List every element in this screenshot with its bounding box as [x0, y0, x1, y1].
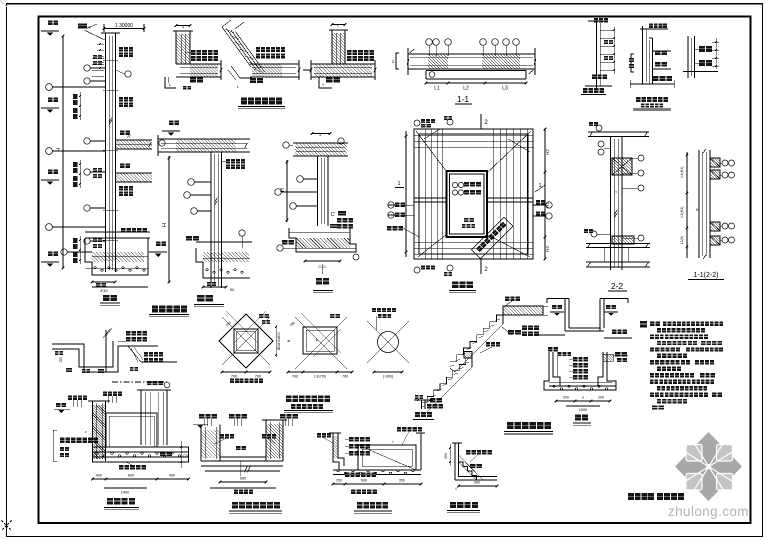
svg-text:700: 700 [342, 375, 348, 379]
svg-text:350: 350 [399, 479, 405, 483]
svg-text:400: 400 [169, 474, 175, 478]
svg-text:300: 300 [474, 481, 480, 485]
svg-text:o: o [582, 396, 584, 400]
svg-text:A': A' [127, 134, 131, 139]
svg-text:250: 250 [336, 479, 342, 483]
svg-text:400: 400 [96, 474, 102, 478]
svg-text:700: 700 [231, 375, 237, 379]
svg-text:C': C' [331, 212, 336, 218]
svg-text:L3: L3 [502, 86, 508, 92]
svg-text:600: 600 [361, 479, 367, 483]
svg-text:700: 700 [292, 375, 298, 379]
svg-text:H2: H2 [545, 149, 550, 155]
svg-text:2-2: 2-2 [611, 281, 624, 291]
svg-text:[-300]: [-300] [383, 375, 393, 379]
svg-text:H3: H3 [545, 246, 550, 252]
svg-text:200: 200 [598, 396, 604, 400]
svg-text:600: 600 [128, 474, 134, 478]
svg-text:150: 150 [59, 357, 63, 363]
svg-text:1-1(2-2): 1-1(2-2) [694, 272, 719, 279]
svg-text:H1: H1 [545, 202, 550, 208]
svg-text:H: H [280, 188, 286, 192]
svg-text:E10: E10 [100, 288, 108, 293]
svg-text:200: 200 [563, 396, 569, 400]
svg-text:H: H [56, 148, 62, 152]
svg-text:1: 1 [397, 181, 400, 187]
svg-text:200: 200 [444, 453, 448, 459]
svg-text:1400: 1400 [121, 491, 129, 495]
svg-text:H: H [696, 208, 699, 212]
svg-text:L3x700: L3x700 [314, 375, 326, 379]
svg-text:700: 700 [255, 375, 261, 379]
svg-text:50: 50 [230, 288, 234, 292]
svg-text:C20: C20 [183, 454, 190, 458]
svg-text:L3(H3): L3(H3) [680, 207, 684, 218]
svg-text:L1: L1 [434, 86, 440, 92]
svg-text:BDxH2x600: BDxH2x600 [277, 332, 281, 350]
svg-text:L4(H4): L4(H4) [680, 167, 684, 178]
svg-text:1 30000: 1 30000 [115, 23, 133, 29]
svg-text:600: 600 [240, 477, 246, 481]
svg-text:1-1: 1-1 [457, 94, 470, 104]
svg-text:H: H [162, 223, 168, 227]
svg-text:L2: L2 [463, 86, 469, 92]
svg-text:L1(H): L1(H) [680, 236, 684, 244]
svg-text:h: h [84, 431, 88, 433]
svg-text:1000: 1000 [579, 408, 587, 412]
svg-text:zhulong.com: zhulong.com [668, 504, 749, 519]
